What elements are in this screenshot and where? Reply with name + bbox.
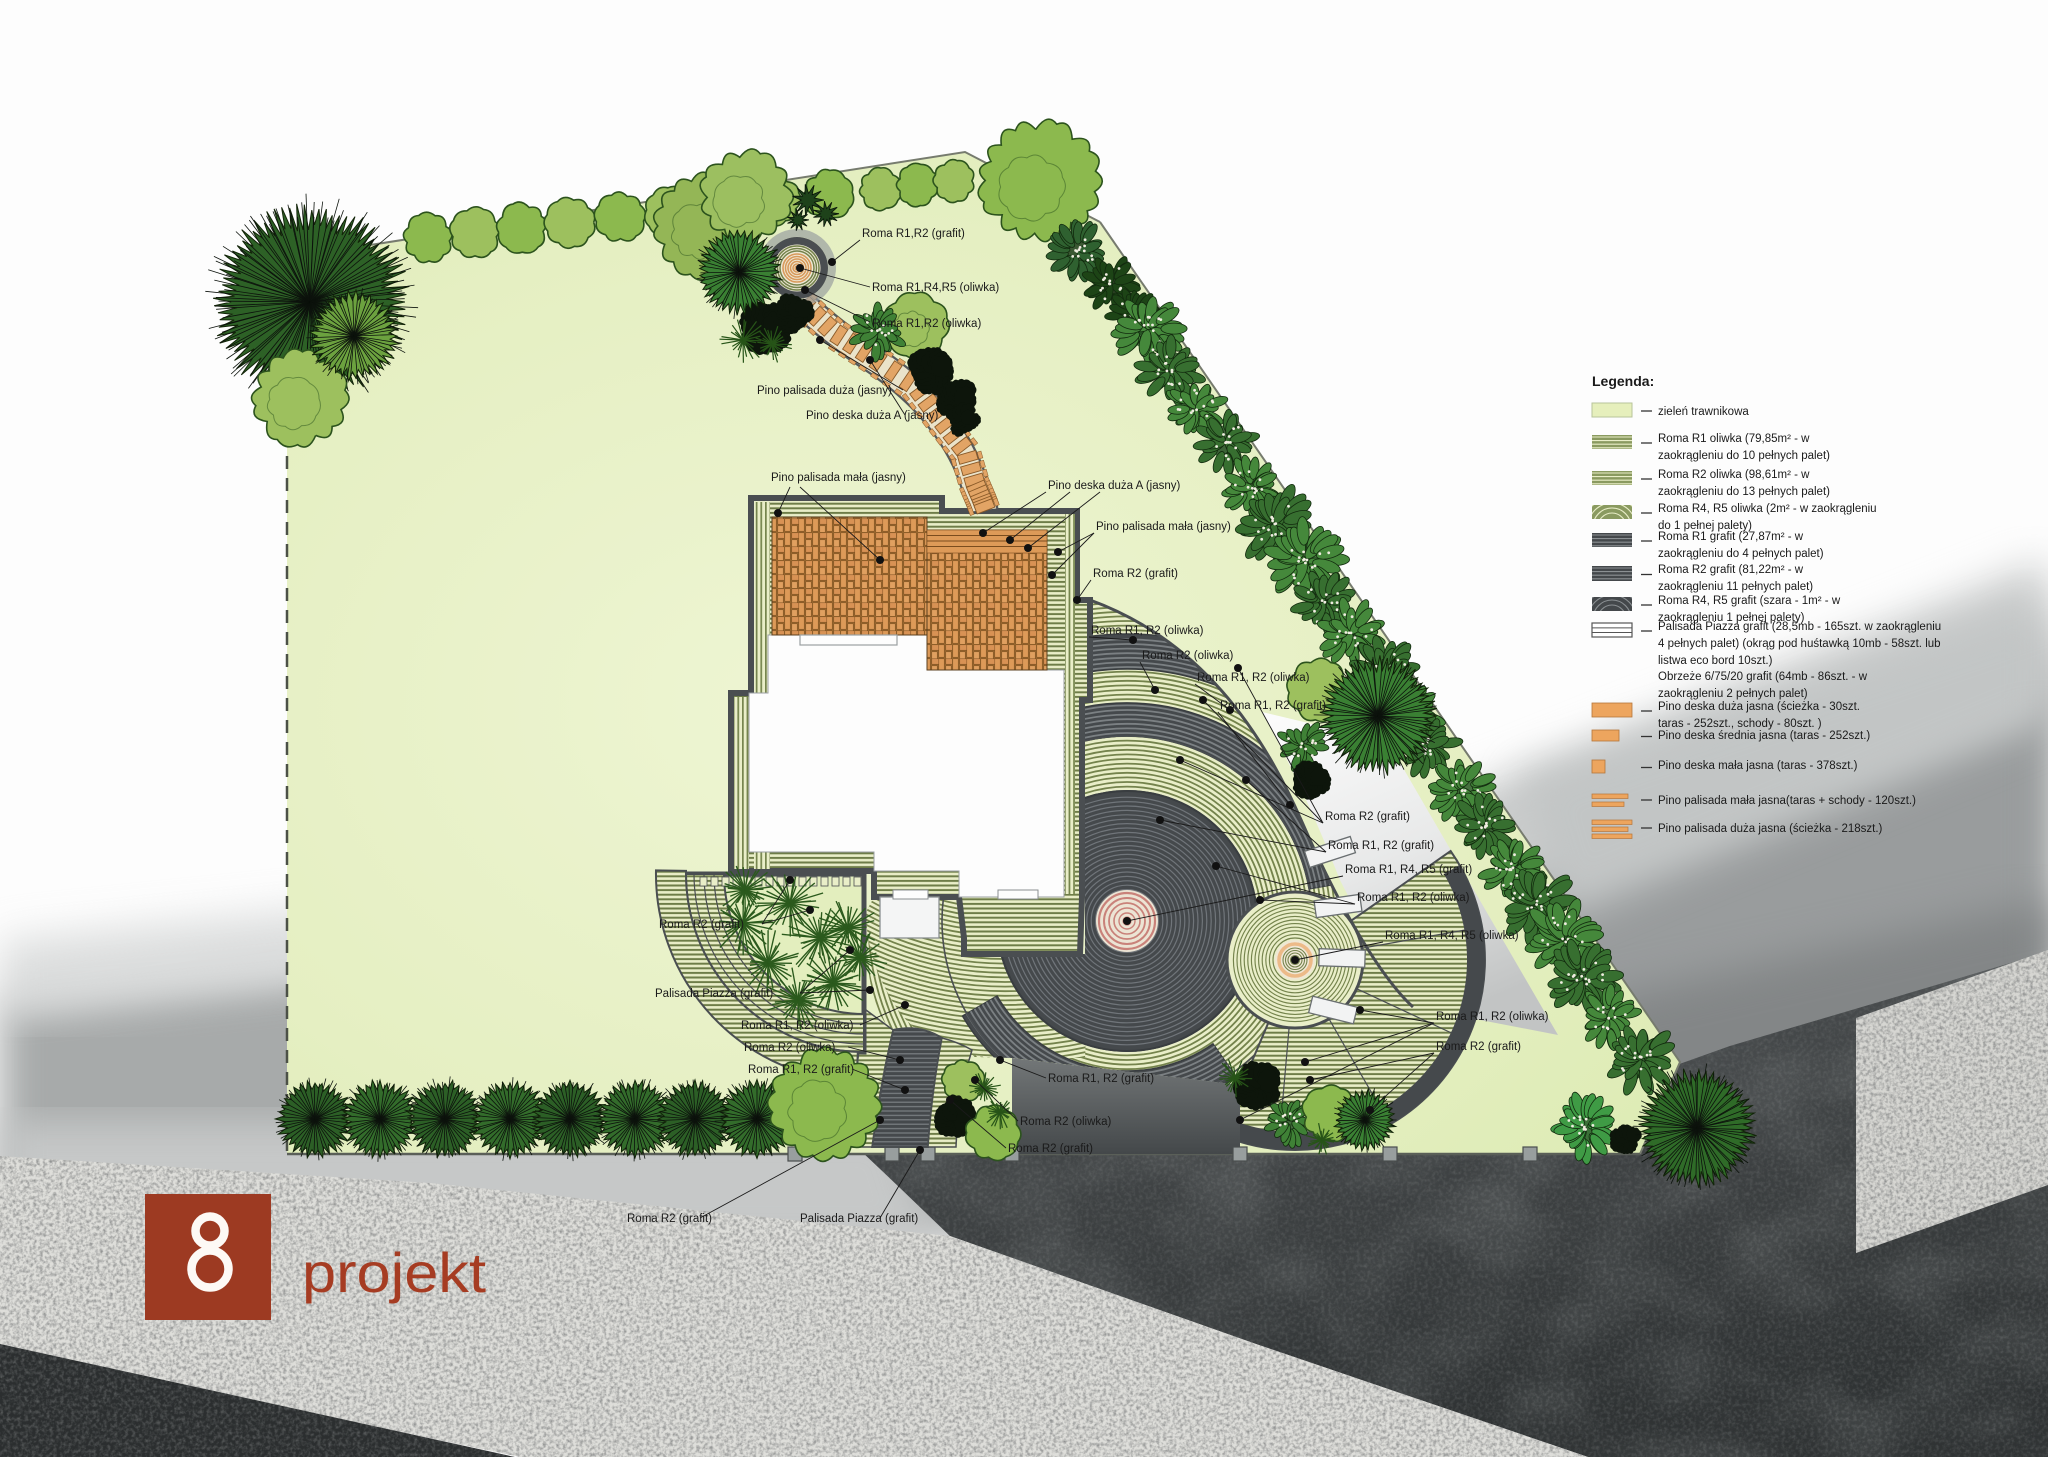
svg-text:Roma R1, R4, R5 (oliwka): Roma R1, R4, R5 (oliwka)	[1385, 930, 1519, 942]
svg-text:Roma R1, R2 (oliwka): Roma R1, R2 (oliwka)	[1091, 625, 1204, 637]
svg-text:4 pełnych palet) (okrąg pod hu: 4 pełnych palet) (okrąg pod huśtawką 10m…	[1658, 638, 1941, 650]
svg-text:zaokrągleniu do 10 pełnych pal: zaokrągleniu do 10 pełnych palet)	[1658, 450, 1830, 462]
svg-text:Roma R2 (oliwka): Roma R2 (oliwka)	[1020, 1116, 1112, 1128]
svg-text:Pino deska średnia jasna (tara: Pino deska średnia jasna (taras - 252szt…	[1658, 730, 1870, 742]
svg-text:Pino deska mała jasna (taras -: Pino deska mała jasna (taras - 378szt.)	[1658, 760, 1858, 772]
svg-text:zaokrągleniu do 13 pełnych pal: zaokrągleniu do 13 pełnych palet)	[1658, 486, 1830, 498]
svg-text:Pino palisada duża jasna (ście: Pino palisada duża jasna (ścieżka - 218s…	[1658, 823, 1883, 835]
svg-text:Pino palisada mała (jasny): Pino palisada mała (jasny)	[771, 472, 906, 484]
svg-text:projekt: projekt	[302, 1241, 486, 1304]
svg-text:Pino palisada duża (jasny): Pino palisada duża (jasny)	[757, 385, 892, 397]
svg-text:Roma R1,R2 (oliwka): Roma R1,R2 (oliwka)	[872, 318, 981, 330]
svg-text:taras - 252szt., schody - 80sz: taras - 252szt., schody - 80szt. )	[1658, 718, 1822, 730]
svg-text:Obrzeże 6/75/20 grafit (64mb -: Obrzeże 6/75/20 grafit (64mb - 86szt. - …	[1658, 671, 1868, 683]
svg-text:Roma R2 (grafit): Roma R2 (grafit)	[659, 919, 744, 931]
svg-text:Roma R2 (grafit): Roma R2 (grafit)	[1093, 568, 1178, 580]
svg-text:listwa eco bord 10szt.): listwa eco bord 10szt.)	[1658, 655, 1773, 667]
svg-text:Roma R1, R2 (grafit): Roma R1, R2 (grafit)	[748, 1064, 854, 1076]
svg-text:Roma R1, R2 (grafit): Roma R1, R2 (grafit)	[1048, 1073, 1154, 1085]
svg-text:Roma R2 (grafit): Roma R2 (grafit)	[1008, 1143, 1093, 1155]
svg-text:Palisada Piazza grafit (28,5mb: Palisada Piazza grafit (28,5mb - 165szt.…	[1658, 621, 1941, 633]
svg-text:Roma R2 oliwka (98,61m² - w: Roma R2 oliwka (98,61m² - w	[1658, 469, 1810, 481]
svg-text:Roma R1, R2 (oliwka): Roma R1, R2 (oliwka)	[741, 1020, 854, 1032]
svg-text:zaokrągleniu 2 pełnych palet): zaokrągleniu 2 pełnych palet)	[1658, 688, 1808, 700]
svg-text:Roma R2 (grafit): Roma R2 (grafit)	[627, 1213, 712, 1225]
svg-text:Palisada Piazza (grafit): Palisada Piazza (grafit)	[800, 1213, 918, 1225]
svg-text:Roma R2 grafit (81,22m² - w: Roma R2 grafit (81,22m² - w	[1658, 564, 1804, 576]
svg-text:Palisada Piazza (grafit): Palisada Piazza (grafit)	[655, 988, 773, 1000]
svg-text:Roma R1, R2 (oliwka): Roma R1, R2 (oliwka)	[1357, 892, 1470, 904]
svg-text:Roma R1, R4, R5 (grafit): Roma R1, R4, R5 (grafit)	[1345, 864, 1472, 876]
svg-text:Pino palisada mała jasna(taras: Pino palisada mała jasna(taras + schody …	[1658, 795, 1916, 807]
svg-text:Roma R1 grafit (27,87m² - w: Roma R1 grafit (27,87m² - w	[1658, 531, 1804, 543]
svg-text:Roma R2 (grafit): Roma R2 (grafit)	[1436, 1041, 1521, 1053]
svg-text:zaokrągleniu do 4 pełnych pale: zaokrągleniu do 4 pełnych palet)	[1658, 548, 1824, 560]
svg-text:Roma R2 (grafit): Roma R2 (grafit)	[1325, 811, 1410, 823]
svg-text:zieleń trawnikowa: zieleń trawnikowa	[1658, 406, 1749, 418]
svg-text:Roma R1,R4,R5 (oliwka): Roma R1,R4,R5 (oliwka)	[872, 282, 999, 294]
svg-text:Pino palisada mała (jasny): Pino palisada mała (jasny)	[1096, 521, 1231, 533]
svg-text:zaokrągleniu 11 pełnych palet): zaokrągleniu 11 pełnych palet)	[1658, 581, 1813, 593]
svg-text:Pino deska duża A (jasny): Pino deska duża A (jasny)	[806, 410, 938, 422]
svg-text:Roma R1, R2 (oliwka): Roma R1, R2 (oliwka)	[1436, 1011, 1549, 1023]
svg-text:Roma R2 (oliwka): Roma R2 (oliwka)	[744, 1042, 836, 1054]
svg-text:Pino deska duża A (jasny): Pino deska duża A (jasny)	[1048, 480, 1180, 492]
svg-text:Roma R1, R2 (grafit): Roma R1, R2 (grafit)	[1328, 840, 1434, 852]
svg-text:Roma R1,R2 (grafit): Roma R1,R2 (grafit)	[862, 228, 965, 240]
svg-text:Roma R1 oliwka (79,85m² - w: Roma R1 oliwka (79,85m² - w	[1658, 433, 1810, 445]
svg-text:Legenda:: Legenda:	[1592, 373, 1654, 389]
svg-text:Roma R1, R2 (grafit): Roma R1, R2 (grafit)	[1220, 700, 1326, 712]
svg-text:Pino deska duża jasna (ścieżka: Pino deska duża jasna (ścieżka - 30szt.	[1658, 701, 1860, 713]
svg-text:Roma R4, R5 grafit (szara - 1m: Roma R4, R5 grafit (szara - 1m² - w	[1658, 595, 1841, 607]
svg-text:Roma R4, R5 oliwka (2m² - w za: Roma R4, R5 oliwka (2m² - w zaokrągleniu	[1658, 503, 1877, 515]
svg-text:Roma R1, R2 (oliwka): Roma R1, R2 (oliwka)	[1197, 672, 1310, 684]
svg-text:Roma R2 (oliwka): Roma R2 (oliwka)	[1142, 650, 1234, 662]
